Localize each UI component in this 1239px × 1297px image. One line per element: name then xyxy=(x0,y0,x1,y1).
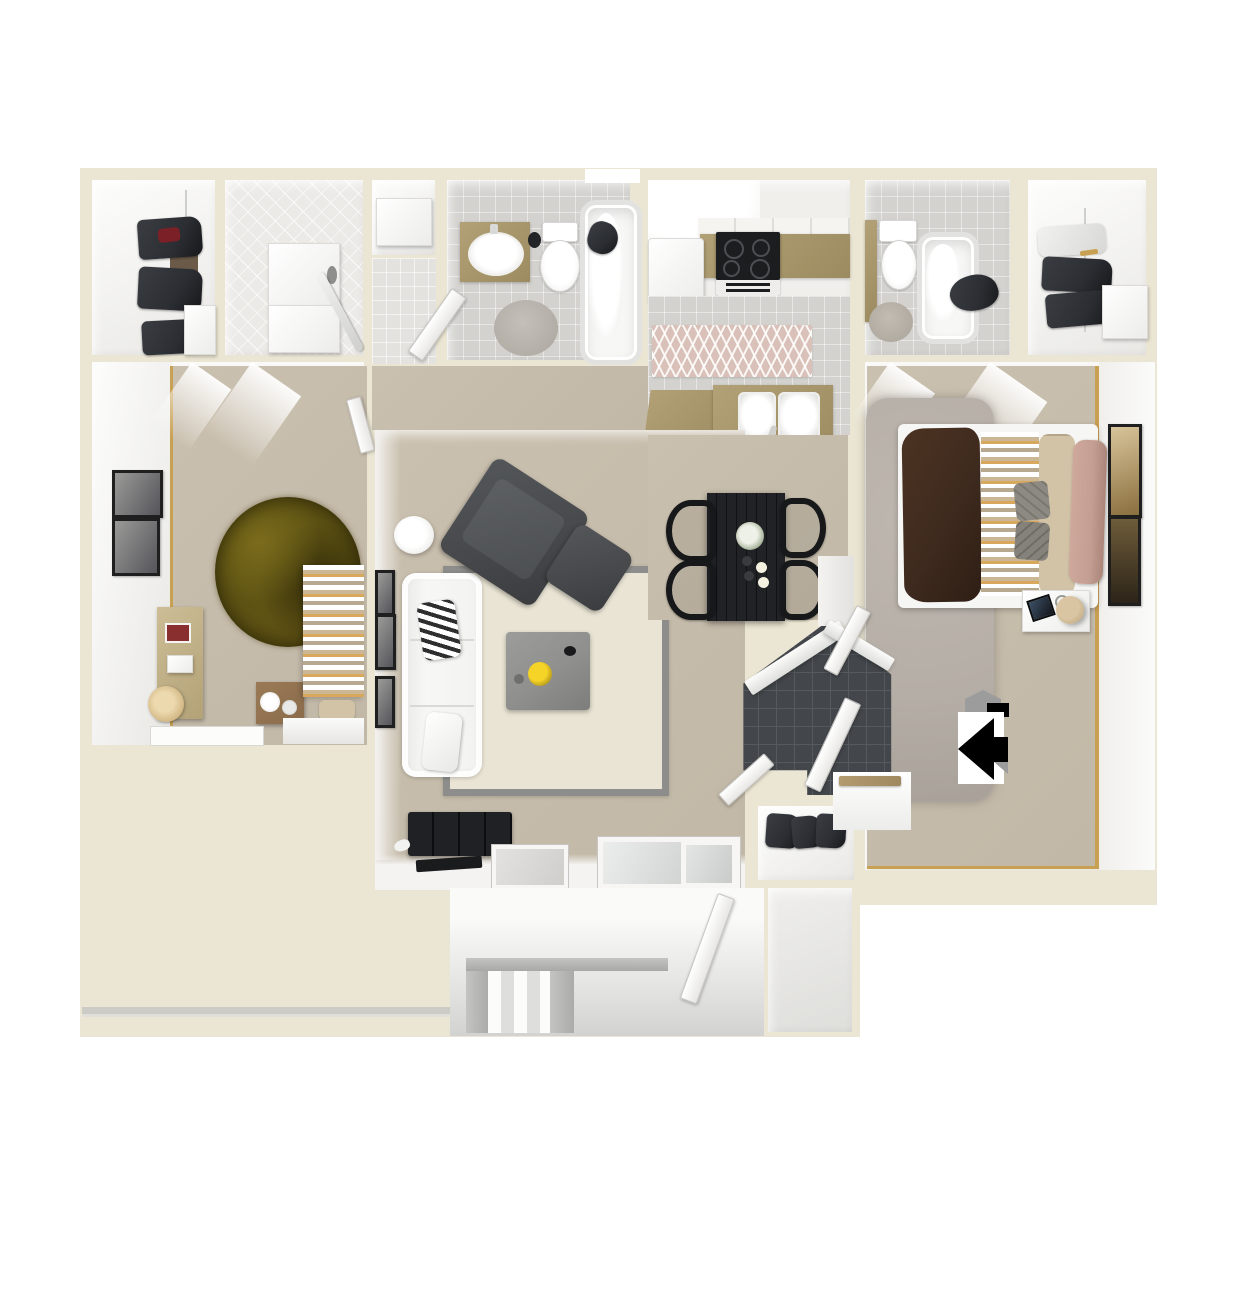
gray-accent-pillow xyxy=(1014,521,1051,561)
glass-pane xyxy=(603,842,681,884)
bath-rug xyxy=(869,302,913,342)
wall-art-frame xyxy=(1108,424,1142,518)
side-table-lamp xyxy=(394,516,434,554)
flower-vase xyxy=(528,662,552,686)
dining-chair xyxy=(666,560,716,620)
shelf-book-red xyxy=(165,623,191,643)
waste-bin xyxy=(528,232,541,248)
glass-pane xyxy=(686,845,732,883)
room-bedroom-left xyxy=(92,362,364,745)
mauve-pillow xyxy=(1068,439,1107,584)
toilet-bowl xyxy=(540,240,580,292)
place-setting xyxy=(744,571,754,581)
oven-vent xyxy=(726,289,770,292)
bed-brown-blanket xyxy=(901,427,982,602)
vanity-counter xyxy=(460,222,530,282)
table-lamp xyxy=(1056,596,1084,624)
window-small xyxy=(492,845,568,889)
bathroom-window xyxy=(585,169,640,183)
wall-art-frame xyxy=(375,570,395,616)
window-sill xyxy=(150,726,264,746)
toilet-tank xyxy=(879,220,917,242)
room-walk-in-closet-right xyxy=(1028,180,1146,355)
refrigerator xyxy=(648,238,704,304)
clothes-red-accent xyxy=(157,227,180,243)
place-setting xyxy=(756,562,767,573)
range-stove xyxy=(716,232,780,280)
storage-box xyxy=(376,198,432,246)
oven-vent xyxy=(726,283,770,286)
patio-railing-top xyxy=(466,958,668,971)
burner xyxy=(750,259,770,279)
room-bathroom-top xyxy=(447,180,630,360)
striped-pillow xyxy=(416,599,462,662)
vanity-sink xyxy=(468,232,524,276)
sofa-cushion-seam xyxy=(410,705,474,707)
burner xyxy=(724,239,744,259)
dining-table xyxy=(707,493,785,621)
crate-lamp xyxy=(260,692,280,712)
room-linen-closet xyxy=(372,180,435,255)
white-pillow xyxy=(421,711,463,772)
room-bathroom-right xyxy=(865,180,1010,355)
clothes-gold-accent xyxy=(1080,249,1099,256)
bed-pillow xyxy=(319,700,355,720)
entry-arrow-icon xyxy=(958,718,994,780)
sink-basin xyxy=(778,392,820,440)
sofa xyxy=(402,573,482,777)
room-laundry xyxy=(225,180,363,355)
coffee-table xyxy=(506,632,590,710)
entry-landing xyxy=(833,772,911,830)
toilet-tank xyxy=(542,222,578,242)
wall-art-frame xyxy=(1108,516,1141,606)
chevron-runner-rug xyxy=(652,325,812,377)
patio-railing-mid xyxy=(550,971,574,1033)
dining-chair xyxy=(780,498,826,558)
foyer-wall-stub xyxy=(818,556,854,626)
place-setting xyxy=(742,556,752,566)
room-patio-storage xyxy=(768,888,852,1032)
hallway-carpet xyxy=(372,366,648,430)
gray-accent-pillow xyxy=(1013,480,1051,521)
tablet xyxy=(1026,594,1056,622)
place-setting xyxy=(758,577,769,588)
dryer xyxy=(268,305,340,353)
oven-drawer xyxy=(716,280,780,296)
wall-art-frame xyxy=(375,676,395,728)
entry-marker xyxy=(955,688,1011,788)
bath-rug xyxy=(494,300,558,356)
closet-dresser xyxy=(184,305,216,355)
room-walk-in-closet-left xyxy=(92,180,215,355)
round-hat xyxy=(148,686,184,722)
toilet-bowl xyxy=(881,240,917,290)
sliding-glass-door xyxy=(597,836,741,892)
flower-centerpiece xyxy=(736,522,764,550)
floor-plan xyxy=(0,0,1239,1297)
bed-footboard xyxy=(283,718,364,744)
entry-arrow-stem xyxy=(994,737,1008,762)
vanity-faucet xyxy=(490,224,498,234)
table-knob xyxy=(514,674,524,684)
burner xyxy=(723,260,740,277)
closet-dresser xyxy=(1102,285,1148,339)
crate-lamp-small xyxy=(282,700,297,715)
patio-steps xyxy=(488,971,550,1033)
bed-striped-linens xyxy=(303,565,364,697)
wall-art-frame xyxy=(112,470,163,518)
wall-art-frame xyxy=(375,614,396,670)
patio-railing-left xyxy=(466,971,488,1033)
entry-bench xyxy=(839,776,901,786)
dining-chair xyxy=(666,500,716,562)
wall-art-frame xyxy=(112,518,160,576)
burner xyxy=(752,239,770,257)
remote xyxy=(564,646,576,656)
shelf-item xyxy=(167,655,193,673)
